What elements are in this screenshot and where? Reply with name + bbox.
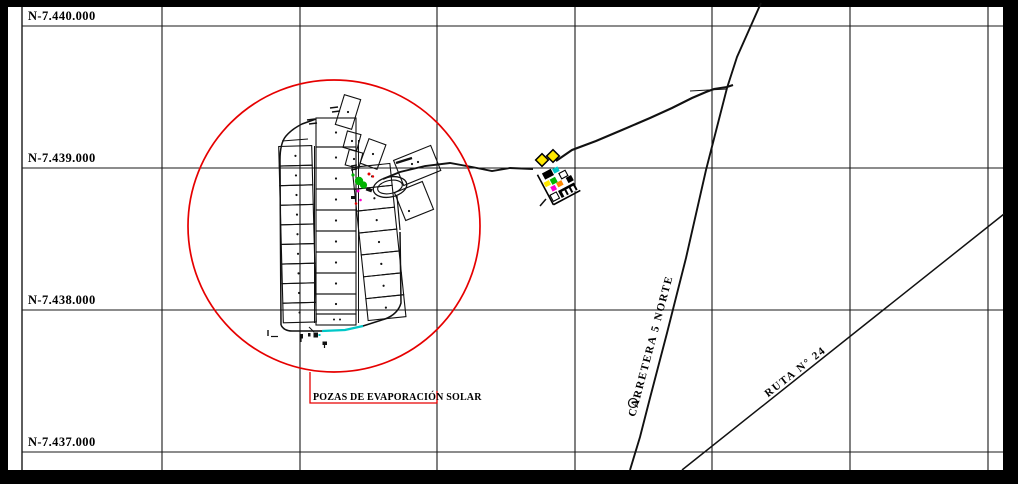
vegetation-mark	[351, 173, 354, 176]
pond-center-point	[335, 219, 337, 221]
cad-drawing-viewport[interactable]: N-7.440.000 N-7.439.000 N-7.438.000 N-7.…	[0, 0, 1018, 484]
northing-label-7440000: N-7.440.000	[28, 9, 96, 24]
pond-center-point	[335, 156, 337, 158]
vegetation-mark	[360, 181, 367, 188]
coordinate-grid-lines	[22, 7, 1003, 470]
northing-label-7438000: N-7.438.000	[28, 293, 96, 308]
pond-center-point	[335, 303, 337, 305]
pond-annotation-label: POZAS DE EVAPORACIÓN SOLAR	[313, 392, 482, 403]
northing-label-7437000: N-7.437.000	[28, 435, 96, 450]
facility-cluster	[536, 150, 581, 206]
pond-tilted-north-group	[307, 95, 386, 170]
pond-column-left	[279, 146, 317, 323]
pond-boundary-notch	[282, 139, 308, 141]
pond-center-point	[295, 194, 297, 196]
pond-center-point	[297, 272, 299, 274]
access-road	[383, 85, 733, 179]
pond-center-point	[385, 306, 387, 308]
pond-center-point	[333, 319, 335, 321]
pond-center-point	[297, 253, 299, 255]
pond-center-point	[335, 177, 337, 179]
northing-label-7439000: N-7.439.000	[28, 151, 96, 166]
pond-tilted-east-group	[394, 145, 441, 220]
facility-buildings	[537, 160, 580, 204]
pond-center-point	[373, 197, 375, 199]
pond-boundary-south	[281, 232, 401, 331]
pond-boundary-road	[280, 119, 316, 325]
pond-center-point	[339, 319, 341, 321]
pond-center-point	[335, 261, 337, 263]
ruta-24-line	[682, 214, 1004, 470]
pond-center-point	[375, 219, 377, 221]
drawing-canvas	[0, 0, 1018, 484]
pond-center-point	[295, 174, 297, 176]
pond-center-point	[335, 240, 337, 242]
pond-center-point	[296, 213, 298, 215]
highlight-annotation	[188, 80, 480, 403]
pond-center-point	[335, 282, 337, 284]
carretera-5-norte-line	[629, 3, 762, 470]
cyan-pipeline	[322, 326, 363, 331]
pond-center-point	[378, 241, 380, 243]
pond-column-right	[352, 163, 406, 320]
pond-center-point	[294, 155, 296, 157]
pond-center-point	[382, 285, 384, 287]
pond-center-point	[296, 233, 298, 235]
pond-center-point	[335, 198, 337, 200]
highlight-circle	[188, 80, 480, 372]
pond-center-point	[335, 131, 337, 133]
pond-cell	[316, 314, 356, 325]
pond-center-point	[380, 263, 382, 265]
